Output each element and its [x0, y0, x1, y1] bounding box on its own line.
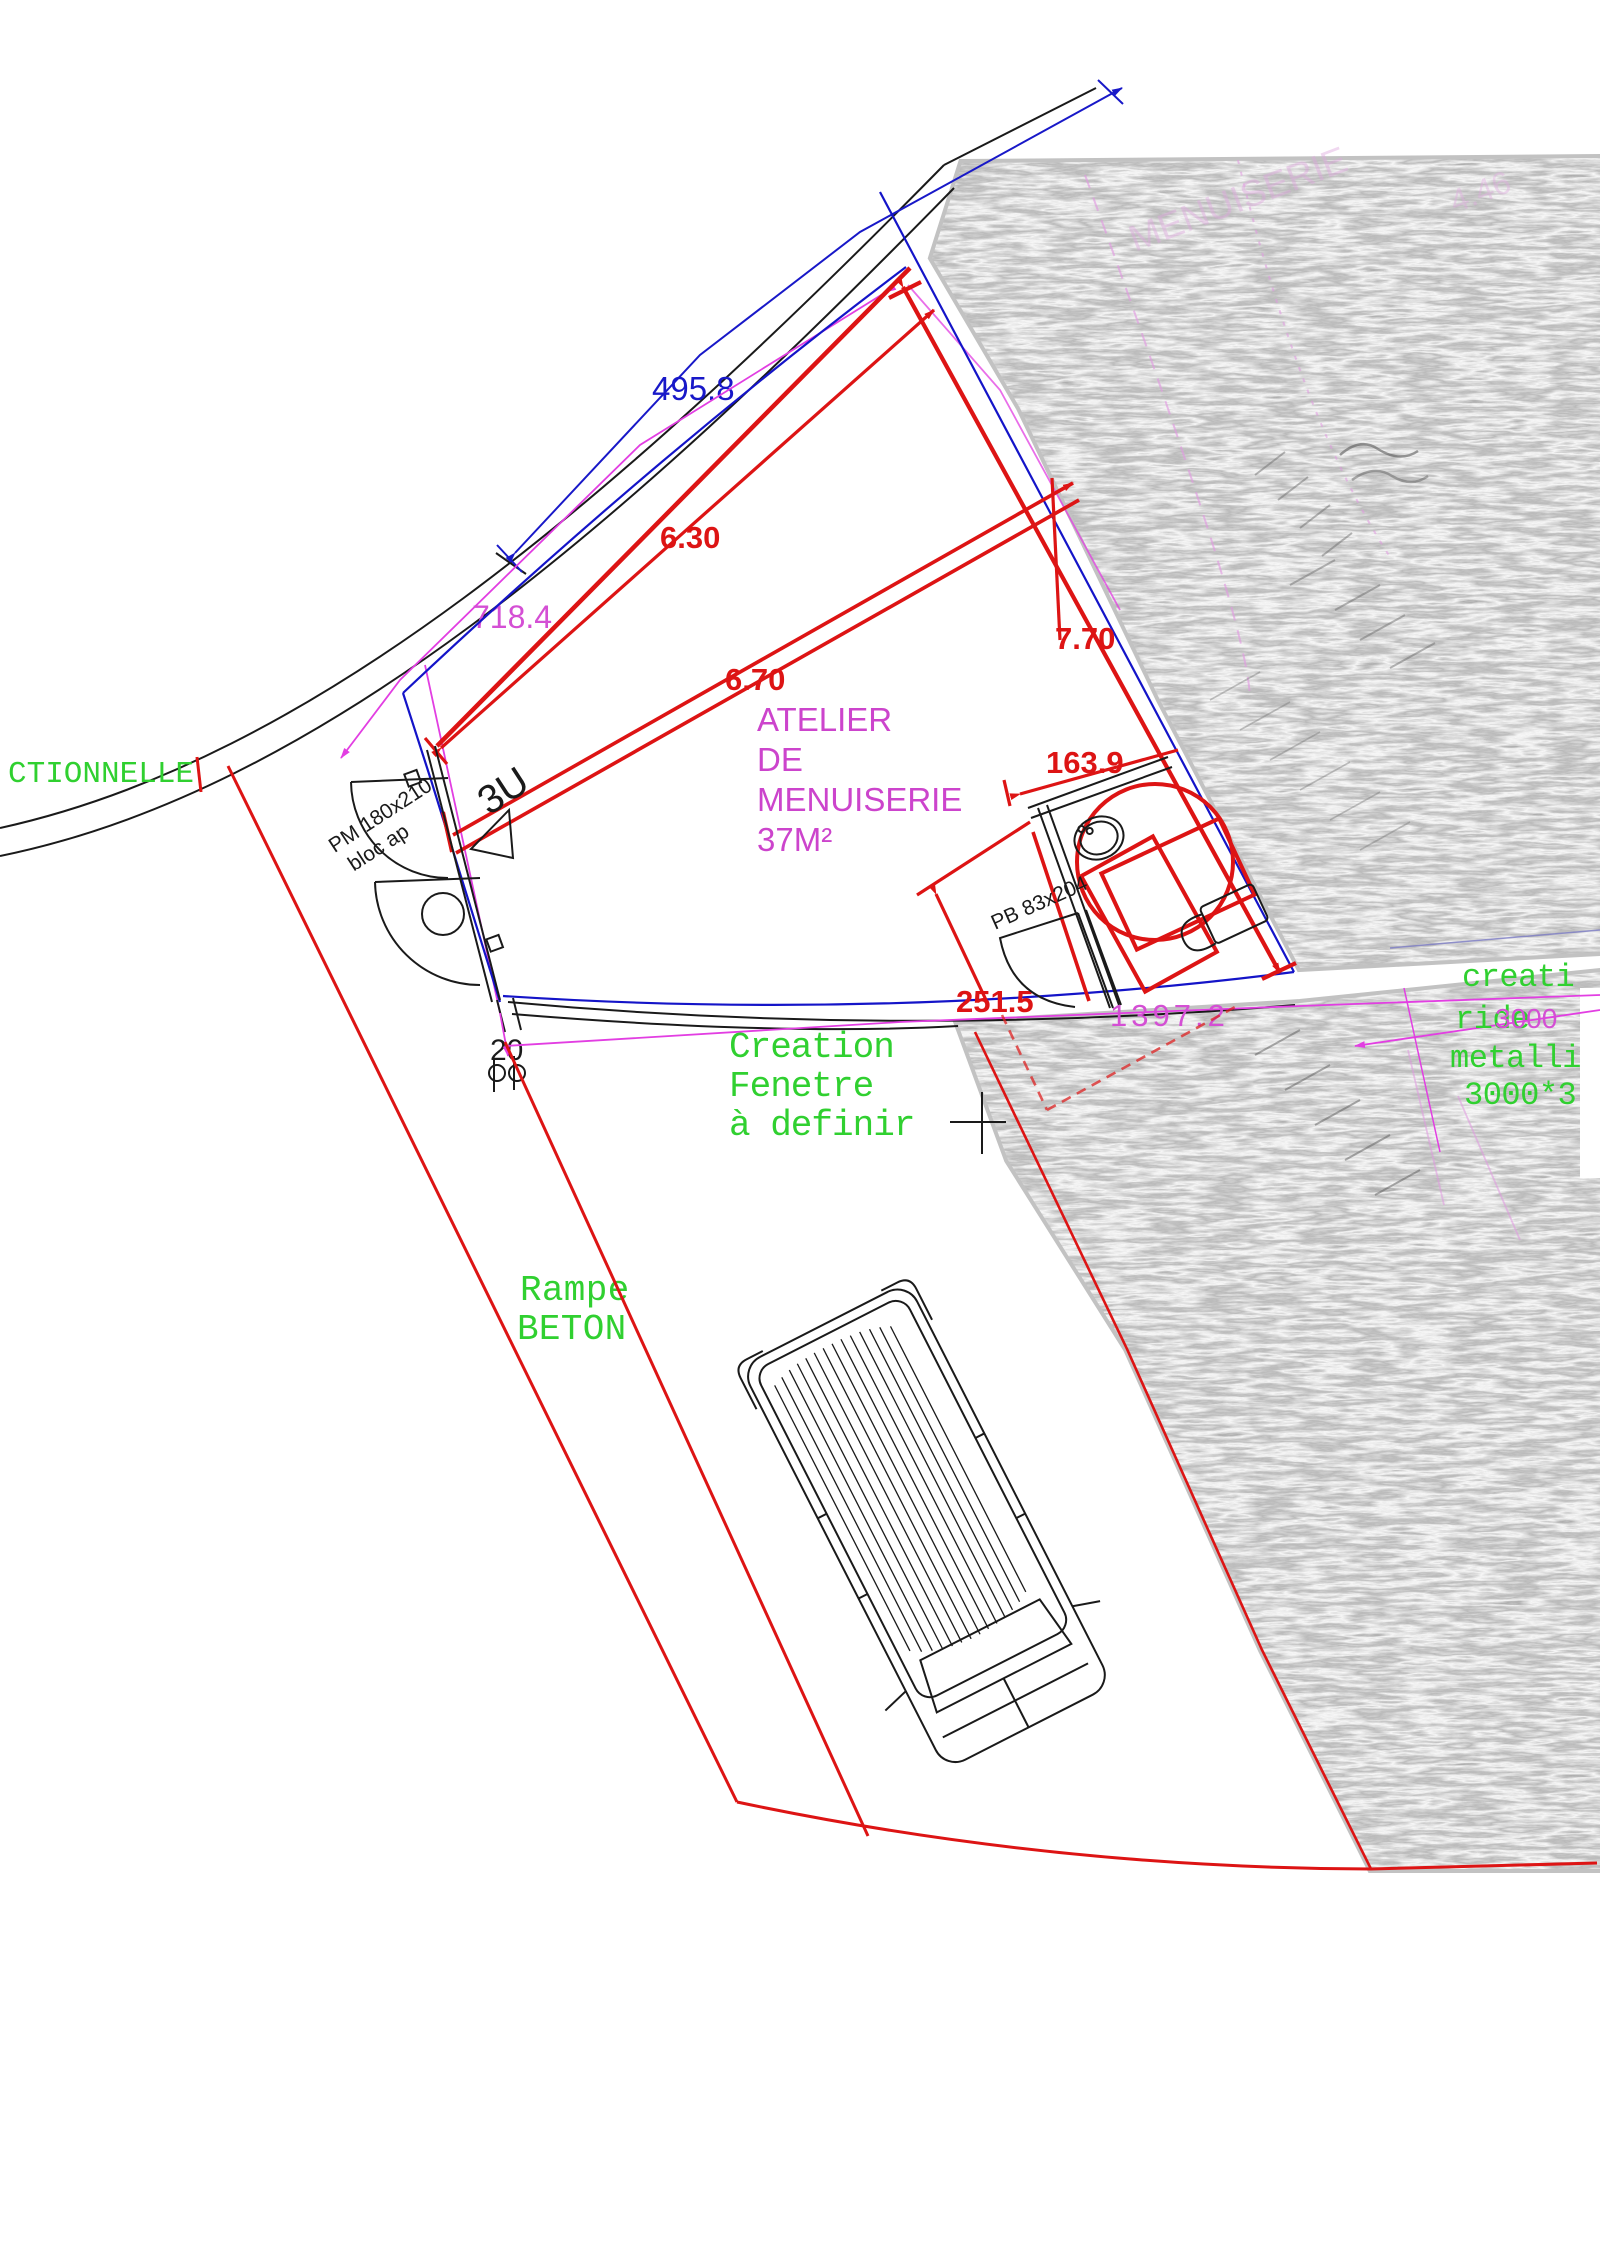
svg-text:Fenetre: Fenetre	[729, 1066, 873, 1107]
svg-text:DE: DE	[757, 741, 803, 778]
svg-text:495.8: 495.8	[652, 370, 735, 407]
svg-text:Creation: Creation	[729, 1027, 894, 1068]
svg-text:CTIONNELLE: CTIONNELLE	[8, 757, 194, 792]
svg-text:MENUISERIE: MENUISERIE	[757, 781, 962, 818]
svg-text:7.70: 7.70	[1055, 621, 1115, 656]
svg-text:à definir: à definir	[729, 1105, 914, 1146]
svg-text:ATELIER: ATELIER	[757, 701, 892, 738]
svg-text:251.5: 251.5	[956, 984, 1034, 1019]
svg-text:1397.2: 1397.2	[1110, 998, 1229, 1033]
svg-text:BETON: BETON	[517, 1309, 627, 1350]
svg-text:metalli: metalli	[1450, 1040, 1581, 1077]
svg-text:163.9: 163.9	[1046, 745, 1124, 780]
svg-text:3000: 3000	[1495, 1003, 1557, 1034]
svg-text:6.30: 6.30	[660, 520, 720, 555]
svg-text:6.70: 6.70	[725, 662, 785, 697]
svg-text:3000*3: 3000*3	[1464, 1077, 1576, 1114]
svg-text:creati: creati	[1462, 959, 1574, 996]
svg-text:37M²: 37M²	[757, 821, 832, 858]
